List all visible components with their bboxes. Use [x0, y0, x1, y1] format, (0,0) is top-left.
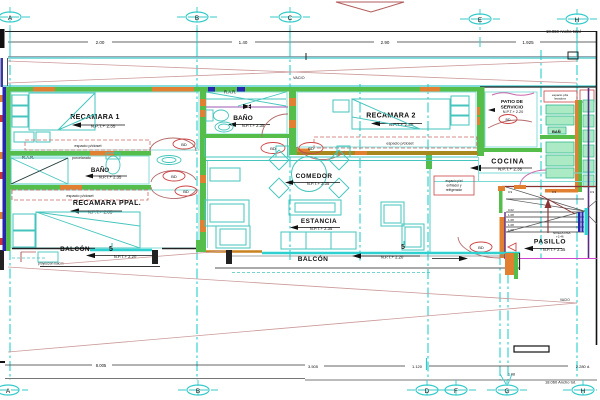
svg-text:lavadora: lavadora	[554, 97, 566, 101]
svg-text:8.005: 8.005	[96, 363, 107, 368]
svg-text:enfriador y: enfriador y	[446, 184, 461, 188]
svg-text:C: C	[288, 15, 293, 22]
svg-text:COMEDOR: COMEDOR	[296, 173, 333, 180]
svg-text:2.00: 2.00	[96, 40, 105, 45]
svg-text:N.P.T.+ 2.20: N.P.T.+ 2.20	[381, 254, 404, 259]
svg-text:2.90: 2.90	[381, 40, 390, 45]
svg-text:A: A	[8, 15, 13, 22]
svg-text:3.505: 3.505	[308, 364, 319, 369]
svg-text:N.P.T.+ 2.35: N.P.T.+ 2.35	[99, 174, 122, 179]
svg-text:N.P.T.+ 2.35: N.P.T.+ 2.35	[242, 123, 265, 128]
svg-text:BAÑO: BAÑO	[233, 113, 252, 122]
svg-text:1.08: 1.08	[508, 223, 514, 227]
svg-text:R.A.R.: R.A.R.	[22, 155, 34, 160]
svg-text:B: B	[196, 388, 200, 395]
svg-text:5: 5	[401, 244, 405, 251]
svg-text:D: D	[425, 388, 430, 395]
svg-text:0.9: 0.9	[552, 190, 557, 194]
svg-text:18.060 Ancho total: 18.060 Ancho total	[546, 29, 581, 34]
svg-text:espacio p/closet: espacio p/closet	[74, 144, 102, 148]
svg-text:N.P.T.+ 2.20: N.P.T.+ 2.20	[503, 110, 524, 114]
svg-text:BALCÓN: BALCÓN	[60, 244, 90, 253]
svg-text:BD: BD	[270, 146, 276, 151]
svg-text:N.P.T.+ 2.35: N.P.T.+ 2.35	[498, 166, 523, 171]
svg-text:0.02: 0.02	[508, 208, 514, 212]
svg-text:B: B	[195, 15, 199, 22]
svg-text:BD: BD	[308, 146, 314, 151]
svg-text:H: H	[575, 17, 580, 24]
svg-text:espacio p/closet: espacio p/closet	[386, 142, 414, 146]
svg-text:A: A	[6, 388, 11, 395]
svg-text:PATIO DE: PATIO DE	[501, 99, 524, 105]
svg-text:COCINA: COCINA	[491, 159, 525, 166]
svg-text:refrigerador: refrigerador	[446, 188, 463, 192]
svg-text:BD: BD	[183, 189, 189, 194]
svg-text:F: F	[454, 388, 458, 395]
svg-text:R.A.R.: R.A.R.	[224, 90, 236, 95]
svg-text:G: G	[504, 388, 509, 395]
svg-text:BALCÓN: BALCÓN	[298, 254, 329, 263]
svg-text:0.9: 0.9	[590, 190, 595, 194]
svg-text:BD: BD	[171, 174, 177, 179]
svg-text:N.P.T.+ 2.35: N.P.T.+ 2.35	[91, 123, 116, 128]
svg-text:1.08: 1.08	[508, 213, 514, 217]
svg-text:1.40: 1.40	[239, 40, 248, 45]
svg-text:RECAMARA PPAL.: RECAMARA PPAL.	[73, 200, 141, 207]
svg-text:BD: BD	[181, 142, 187, 147]
svg-text:18.060 Ancho tot.: 18.060 Ancho tot.	[545, 380, 576, 385]
svg-text:N.P.T.+ 2.35: N.P.T.+ 2.35	[310, 226, 333, 231]
svg-text:1.925: 1.925	[522, 40, 534, 45]
svg-text:VACIO: VACIO	[560, 298, 570, 302]
svg-text:espacio p/el: espacio p/el	[445, 179, 462, 183]
svg-text:BAÑ: BAÑ	[552, 129, 561, 134]
svg-text:H: H	[581, 388, 586, 395]
svg-text:E: E	[478, 17, 483, 24]
svg-text:2.280 d.: 2.280 d.	[576, 364, 590, 369]
svg-text:N.P.T.+ 2.35: N.P.T.+ 2.35	[307, 181, 330, 186]
svg-text:1.08: 1.08	[508, 218, 514, 222]
svg-text:VACIO: VACIO	[293, 76, 305, 80]
svg-text:1.08: 1.08	[508, 228, 514, 232]
svg-text:5: 5	[109, 246, 113, 253]
svg-text:BD: BD	[478, 245, 484, 250]
svg-text:BD: BD	[506, 118, 511, 122]
svg-text:espacio p/closet: espacio p/closet	[66, 194, 94, 198]
svg-text:ESTANCIA: ESTANCIA	[301, 218, 337, 225]
svg-text:N.P.T.+ 2.35: N.P.T.+ 2.35	[543, 247, 566, 252]
svg-text:1.120: 1.120	[412, 364, 423, 369]
svg-text:PASILLO: PASILLO	[534, 239, 566, 246]
svg-text:0.9: 0.9	[508, 190, 513, 194]
svg-text:porcelanato: porcelanato	[72, 156, 91, 160]
